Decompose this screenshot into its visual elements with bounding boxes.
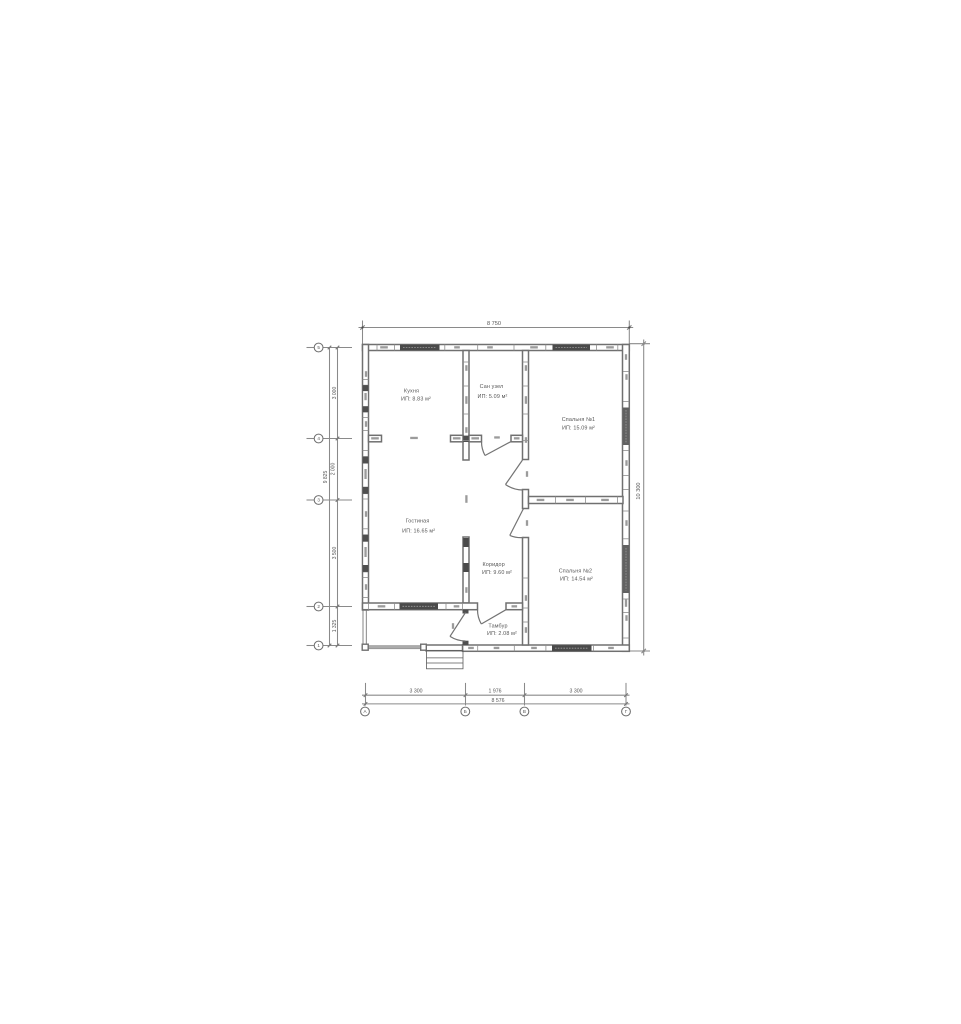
svg-text:Коридор: Коридор bbox=[483, 562, 505, 568]
svg-text:9 825: 9 825 bbox=[323, 471, 329, 484]
svg-text:2: 2 bbox=[317, 604, 320, 609]
svg-text:1 325: 1 325 bbox=[332, 620, 338, 633]
svg-text:4: 4 bbox=[317, 436, 320, 441]
svg-text:Кухня: Кухня bbox=[404, 389, 419, 395]
svg-text:1 976: 1 976 bbox=[489, 689, 502, 695]
svg-text:2 000: 2 000 bbox=[331, 463, 337, 476]
svg-text:3 300: 3 300 bbox=[410, 689, 423, 695]
svg-text:3: 3 bbox=[317, 498, 320, 503]
svg-text:Б: Б bbox=[464, 709, 467, 714]
svg-text:Сан узел: Сан узел bbox=[480, 384, 504, 390]
svg-text:ИП: 14.54 м²: ИП: 14.54 м² bbox=[560, 576, 593, 582]
svg-text:В: В bbox=[523, 709, 526, 714]
svg-text:3 300: 3 300 bbox=[570, 689, 583, 695]
svg-text:ИП: 9.60 м²: ИП: 9.60 м² bbox=[482, 570, 512, 576]
svg-text:ИП: 2.08 м²: ИП: 2.08 м² bbox=[487, 631, 517, 637]
svg-text:Г: Г bbox=[625, 709, 628, 714]
svg-text:Спальня №1: Спальня №1 bbox=[562, 417, 595, 423]
svg-text:ИП: 15.09 м²: ИП: 15.09 м² bbox=[562, 426, 595, 432]
svg-text:ИП: 16.65 м²: ИП: 16.65 м² bbox=[402, 528, 435, 534]
svg-text:10 300: 10 300 bbox=[636, 482, 642, 499]
svg-text:3 500: 3 500 bbox=[332, 547, 338, 560]
svg-text:Гостиная: Гостиная bbox=[406, 519, 430, 525]
svg-text:ИП: 8.83 м²: ИП: 8.83 м² bbox=[401, 397, 431, 403]
svg-text:1: 1 bbox=[317, 643, 320, 648]
svg-text:3 000: 3 000 bbox=[332, 387, 338, 400]
svg-text:8 750: 8 750 bbox=[487, 321, 501, 327]
svg-text:А: А bbox=[363, 709, 367, 714]
svg-text:5: 5 bbox=[317, 345, 320, 350]
svg-text:Спальня №2: Спальня №2 bbox=[559, 569, 592, 575]
svg-text:ИП: 5.09 м²: ИП: 5.09 м² bbox=[478, 394, 508, 400]
svg-text:Тамбур: Тамбур bbox=[488, 624, 507, 630]
svg-text:8 576: 8 576 bbox=[492, 698, 505, 704]
